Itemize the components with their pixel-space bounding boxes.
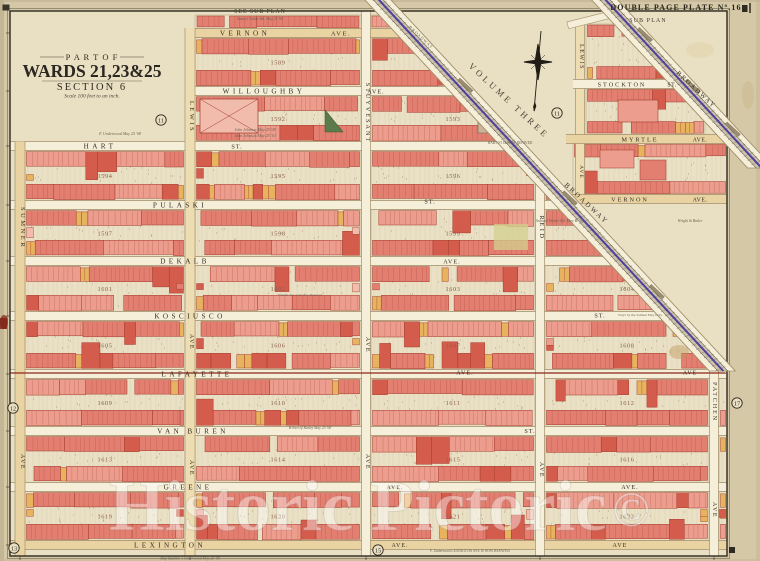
svg-text:11: 11 <box>158 117 164 124</box>
svg-text:AVE: AVE <box>613 542 628 549</box>
svg-text:ST.: ST. <box>231 144 242 151</box>
svg-text:AVE: AVE <box>364 337 370 353</box>
svg-text:1597: 1597 <box>98 231 113 238</box>
svg-text:1593: 1593 <box>446 116 461 123</box>
svg-text:1594: 1594 <box>98 173 113 180</box>
svg-text:15: 15 <box>375 547 381 554</box>
svg-text:Samuel Walter Rd. May B. '08: Samuel Walter Rd. May B. '08 <box>536 218 584 223</box>
svg-text:1607: 1607 <box>446 343 461 350</box>
svg-text:1603: 1603 <box>446 286 461 293</box>
svg-text:LEWIS: LEWIS <box>578 44 584 70</box>
svg-text:ST.: ST. <box>424 199 435 206</box>
svg-text:F. Underwood May 25 '08: F. Underwood May 25 '08 <box>98 131 141 136</box>
svg-text:STOCKTON: STOCKTON <box>598 82 647 89</box>
svg-text:1605: 1605 <box>98 343 113 350</box>
svg-text:WILLOUGHBY: WILLOUGHBY <box>223 88 306 96</box>
svg-text:ST.: ST. <box>667 83 676 89</box>
svg-text:1606: 1606 <box>271 343 286 350</box>
svg-text:Scale 100 feet to an inch.: Scale 100 feet to an inch. <box>64 93 120 100</box>
svg-text:AVE: AVE <box>188 334 194 350</box>
svg-text:1596: 1596 <box>446 173 461 180</box>
svg-text:HART ST IS NOW REPAVED: HART ST IS NOW REPAVED <box>488 141 533 145</box>
svg-text:13: 13 <box>11 545 17 552</box>
svg-text:STUYVESANT: STUYVESANT <box>364 83 371 144</box>
svg-text:SEE SUB PLAN: SEE SUB PLAN <box>234 9 286 15</box>
svg-text:1609: 1609 <box>98 400 113 407</box>
svg-text:AVE: AVE <box>578 165 584 179</box>
svg-text:MYRTLE: MYRTLE <box>621 137 658 144</box>
svg-text:Map Bulletin J.Underwood M: Map Bulletin J.Underwood May 20 '08 <box>159 557 220 561</box>
svg-text:WARDS 21,23&25: WARDS 21,23&25 <box>22 61 161 81</box>
svg-text:Historic Pictoric©: Historic Pictoric© <box>109 466 649 546</box>
svg-text:1601: 1601 <box>98 286 113 293</box>
svg-text:Samuel Walter Rd. May 25 '08: Samuel Walter Rd. May 25 '08 <box>237 17 283 21</box>
svg-text:SUB PLAN: SUB PLAN <box>629 18 666 24</box>
svg-text:John Johnson May 25 '08: John Johnson May 25 '08 <box>234 127 275 132</box>
svg-text:Wash'n Ave at its now Repaved: Wash'n Ave at its now Repaved <box>278 293 322 297</box>
svg-text:1612: 1612 <box>620 400 635 407</box>
svg-text:VERNON: VERNON <box>220 30 270 38</box>
svg-text:Wright & Butler: Wright & Butler <box>678 219 703 223</box>
svg-text:ST.: ST. <box>524 428 535 435</box>
svg-text:SECTION 6: SECTION 6 <box>57 82 127 93</box>
svg-text:DOUBLE PAGE PLATE Nº.16: DOUBLE PAGE PLATE Nº.16 <box>610 3 741 12</box>
svg-text:VERNON: VERNON <box>611 197 649 204</box>
svg-text:HART: HART <box>84 143 117 151</box>
svg-text:PULASKI: PULASKI <box>153 202 207 210</box>
svg-text:1589: 1589 <box>271 60 286 67</box>
svg-text:1592: 1592 <box>271 116 286 123</box>
svg-text:1595: 1595 <box>271 173 286 180</box>
svg-text:AVE.: AVE. <box>456 370 473 377</box>
svg-text:AVE: AVE <box>683 371 697 377</box>
svg-text:1602: 1602 <box>271 286 286 293</box>
svg-text:AVE.: AVE. <box>693 198 708 204</box>
svg-text:ST.: ST. <box>594 313 605 320</box>
svg-text:AVE.: AVE. <box>331 31 351 38</box>
svg-text:SUMNER: SUMNER <box>19 207 26 249</box>
svg-text:LEWIS: LEWIS <box>188 101 195 133</box>
svg-text:1611: 1611 <box>446 400 461 407</box>
svg-text:KOSCIUSCO: KOSCIUSCO <box>154 313 225 321</box>
svg-text:12: 12 <box>10 405 16 412</box>
svg-text:1615: 1615 <box>446 457 461 464</box>
svg-text:17: 17 <box>734 400 740 407</box>
svg-text:AVE: AVE <box>711 502 717 518</box>
svg-text:1608: 1608 <box>620 343 635 350</box>
svg-text:B.Weil of Bailey May 25 '08: B.Weil of Bailey May 25 '08 <box>289 426 332 430</box>
svg-text:AVE: AVE <box>19 454 25 470</box>
svg-text:DEKALB: DEKALB <box>160 258 210 266</box>
svg-text:11: 11 <box>554 110 560 117</box>
svg-text:1599: 1599 <box>446 231 461 238</box>
svg-text:1598: 1598 <box>271 231 286 238</box>
svg-text:1616: 1616 <box>620 457 635 464</box>
svg-text:F. Underwood LEXINGTON AVE: F. Underwood LEXINGTON AVE IS NOW REPAVE… <box>430 549 510 553</box>
svg-text:1610: 1610 <box>271 400 286 407</box>
svg-text:AVE.: AVE. <box>443 259 460 266</box>
svg-text:John Johnson May 25 '10: John Johnson May 25 '10 <box>234 133 275 138</box>
svg-text:Trep't by the Samuel May Gray: Trep't by the Samuel May Gray <box>618 313 662 317</box>
svg-text:1613: 1613 <box>98 457 113 464</box>
svg-text:AVE.: AVE. <box>693 138 708 144</box>
svg-text:LAFAYETTE: LAFAYETTE <box>162 371 233 379</box>
svg-text:PATCHEN: PATCHEN <box>711 382 718 422</box>
svg-text:1614: 1614 <box>271 457 286 464</box>
svg-text:VAN BUREN: VAN BUREN <box>157 428 228 436</box>
